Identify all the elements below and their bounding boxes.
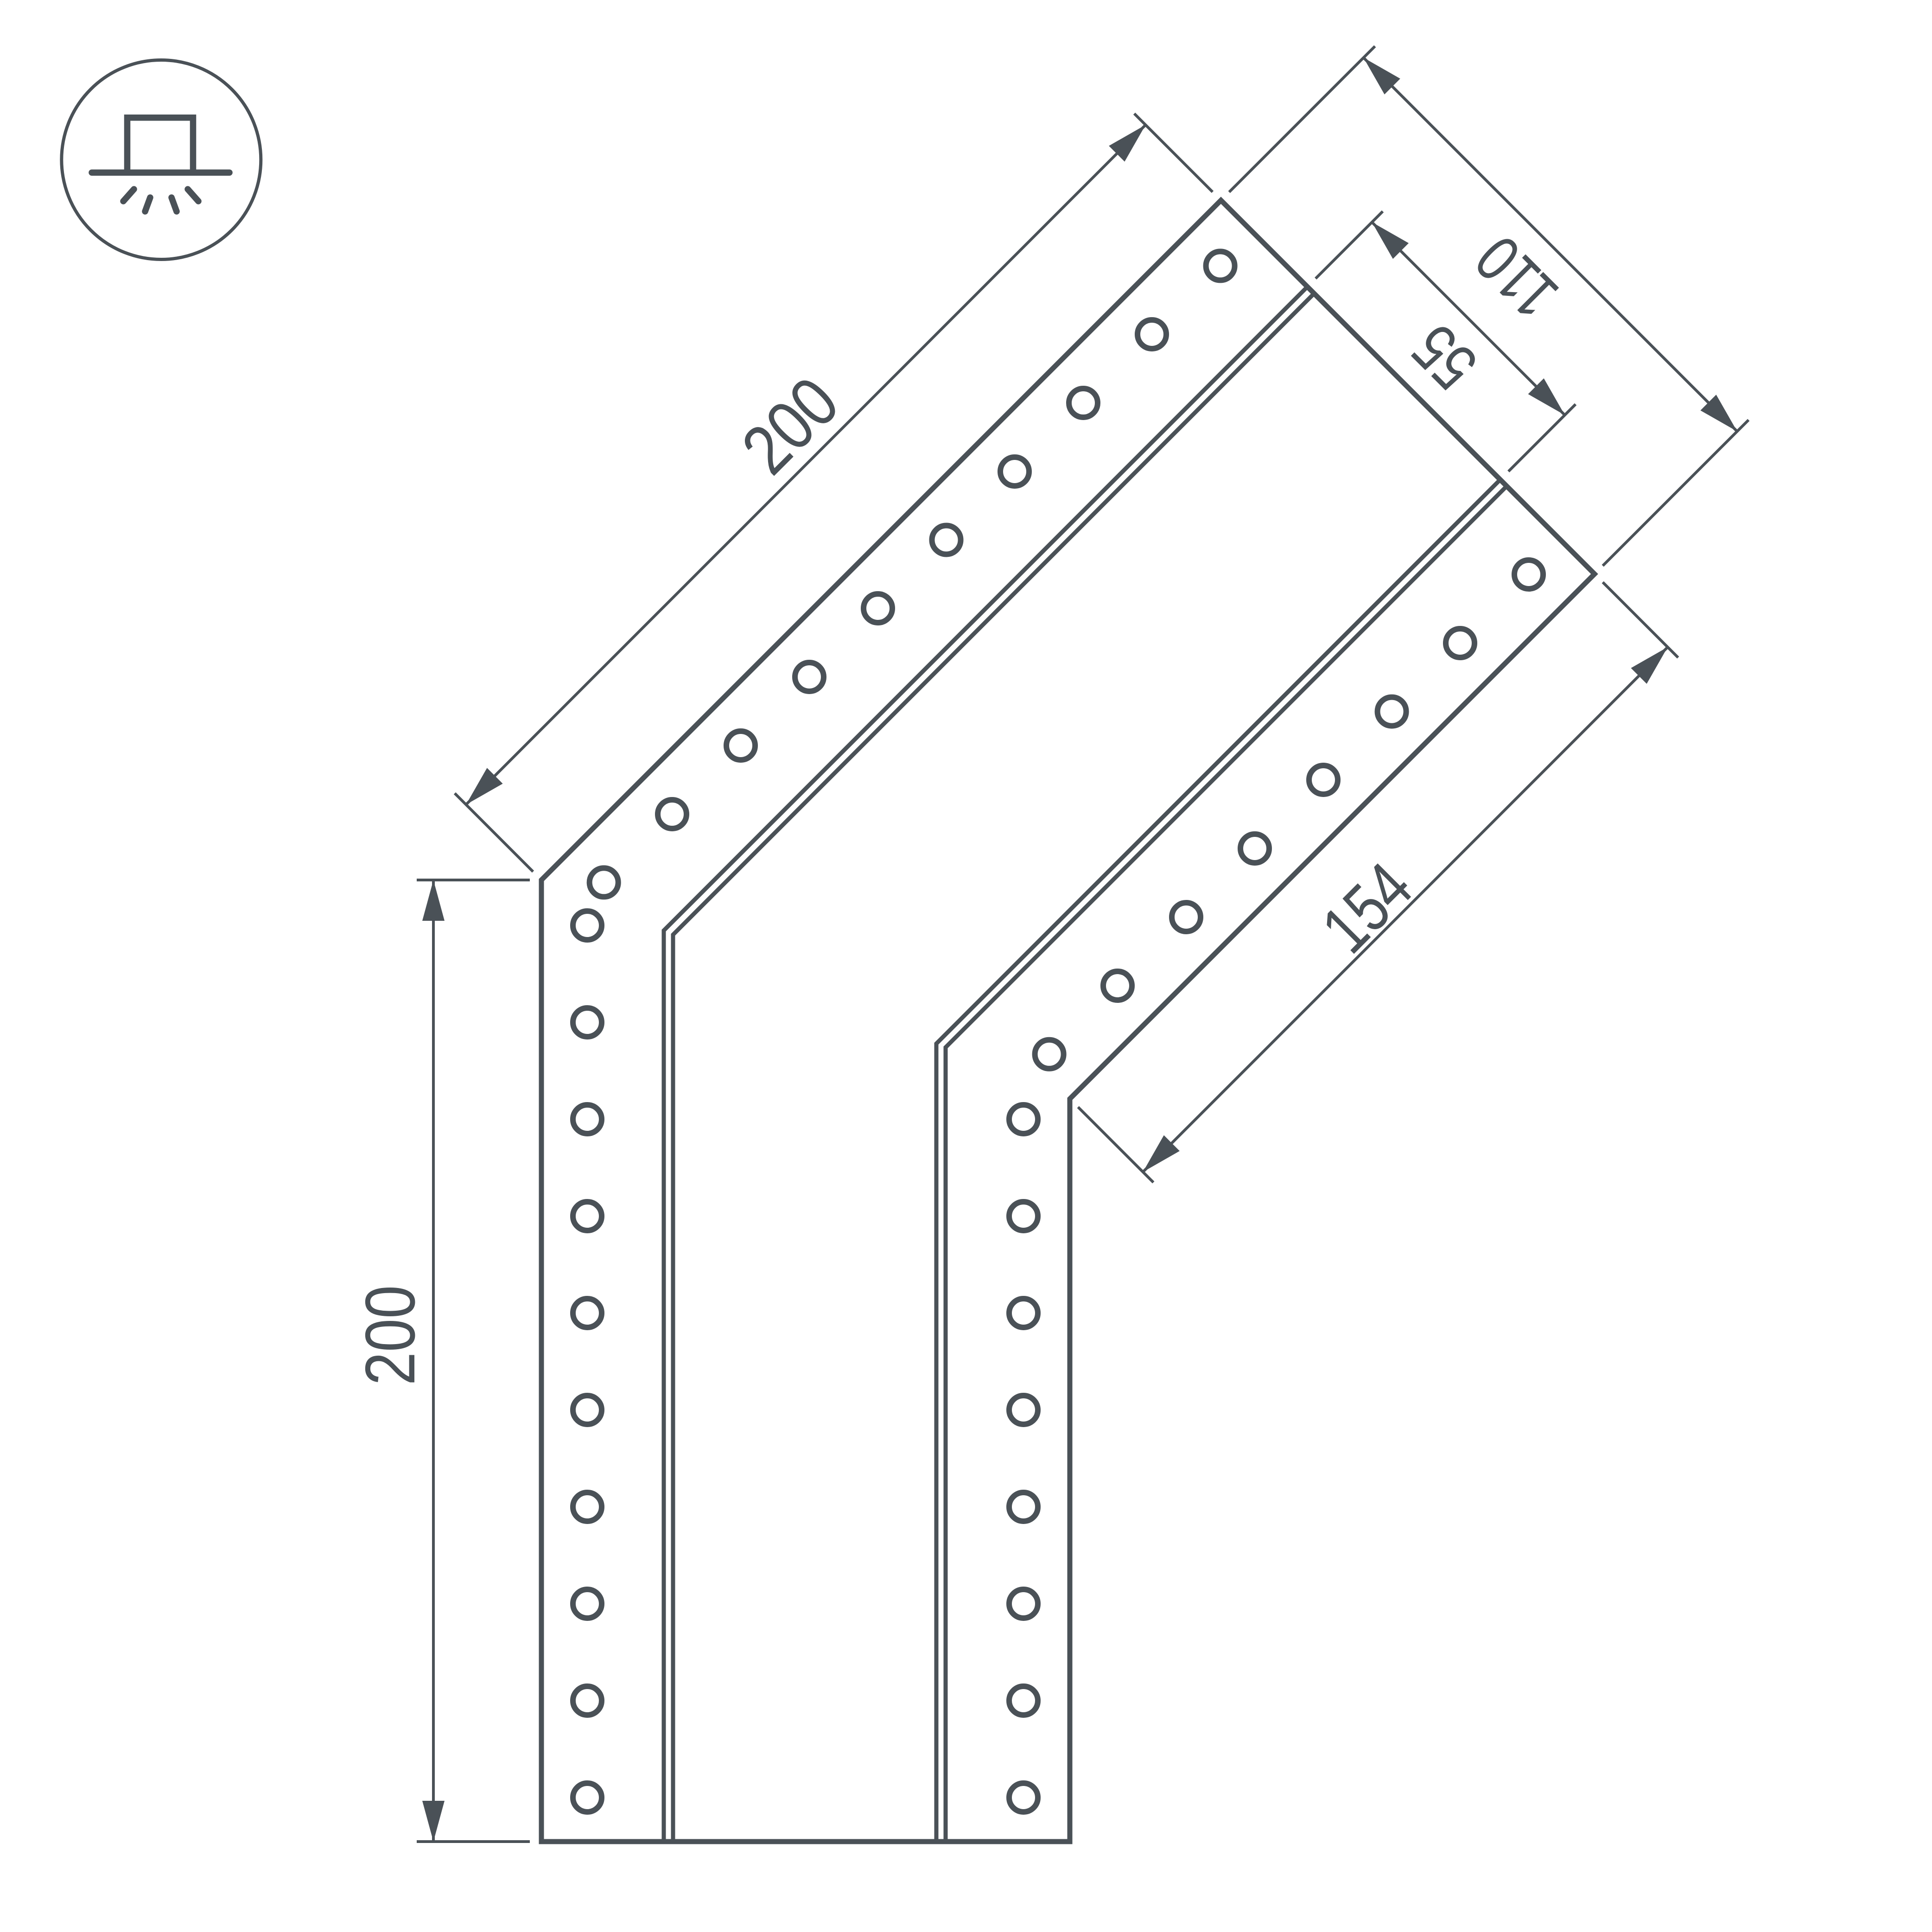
svg-text:154: 154 (1308, 848, 1427, 968)
svg-text:110: 110 (1462, 222, 1572, 332)
svg-text:200: 200 (351, 1285, 430, 1385)
svg-text:200: 200 (727, 363, 854, 489)
